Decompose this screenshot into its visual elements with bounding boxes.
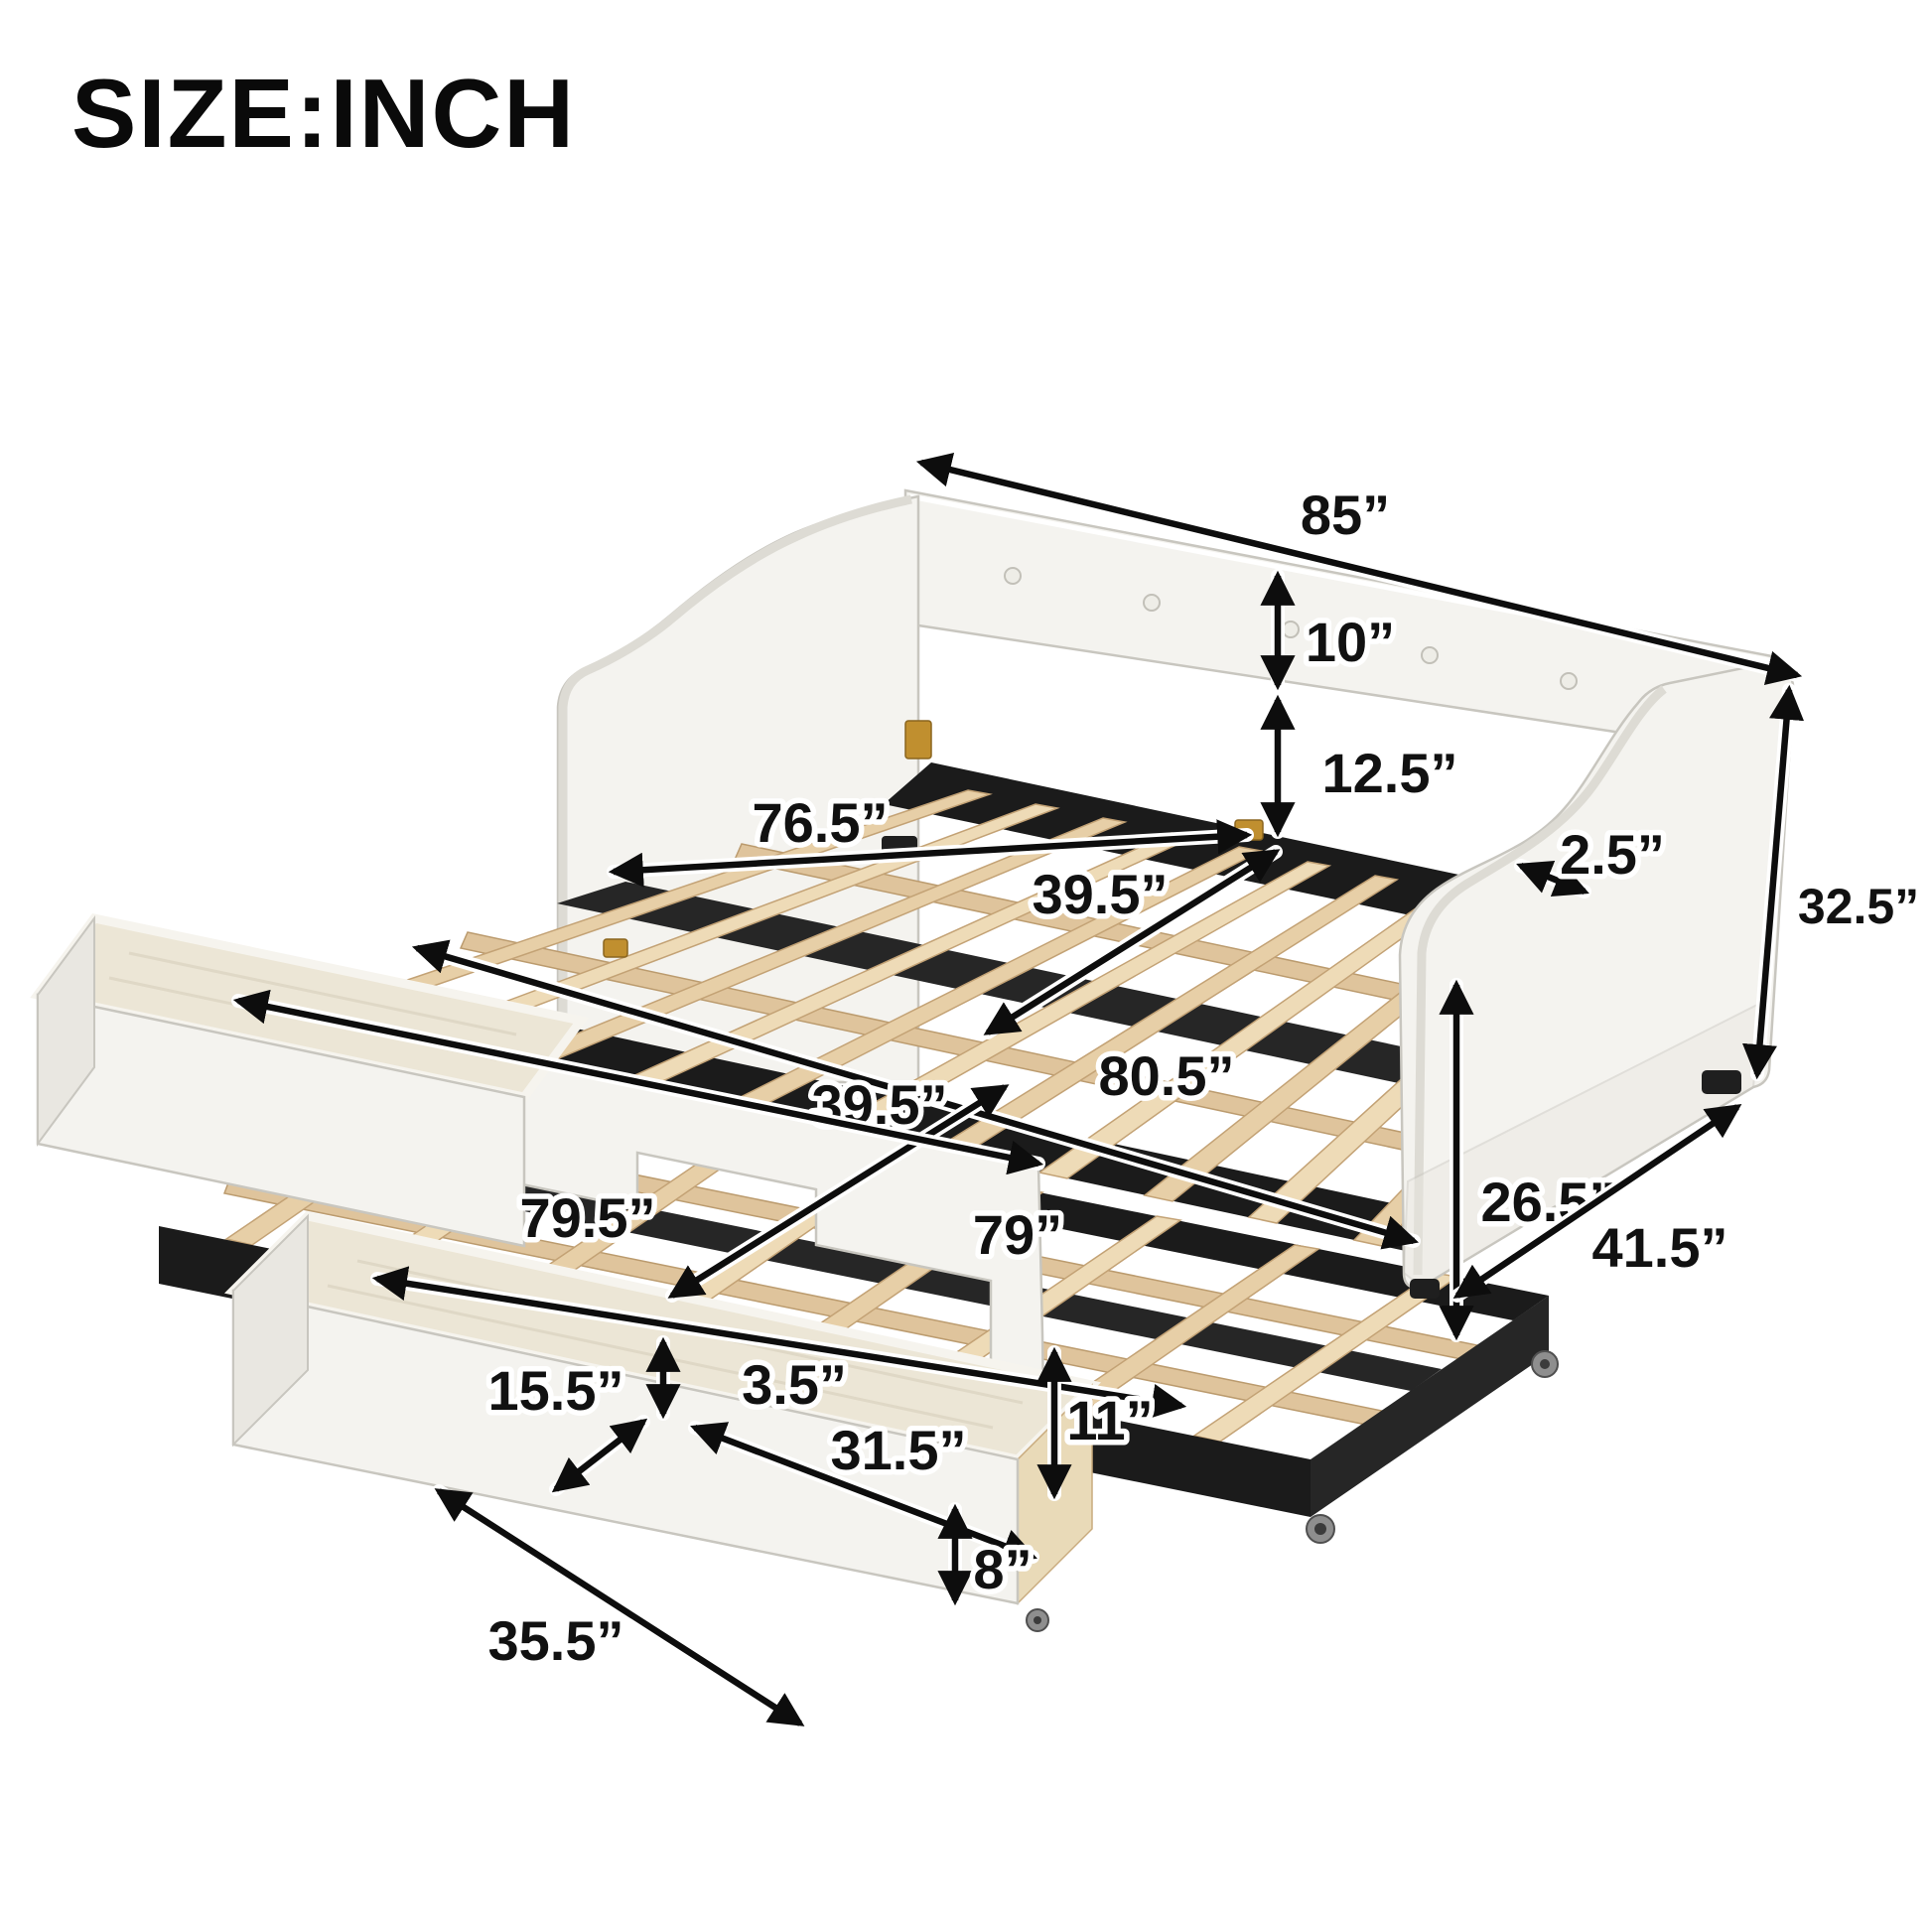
caster-hub xyxy=(1314,1523,1326,1535)
hinge-bracket xyxy=(604,939,627,957)
dim-label-back-gap-height: 12.5” xyxy=(1322,742,1458,804)
dim-label-drawer-depth: 15.5” xyxy=(488,1359,624,1422)
dim-label-overall-length: 85” xyxy=(1301,483,1390,546)
dim-label-overall-height: 32.5” xyxy=(1798,879,1919,934)
dim-label-drawer-gap: 3.5” xyxy=(742,1353,847,1416)
page-title: SIZE:INCH xyxy=(71,59,576,168)
daybed-dimension-diagram: SIZE:INCH xyxy=(0,0,1932,1932)
tufting-button xyxy=(1283,621,1299,637)
dim-label-drawer-height: 8” xyxy=(973,1538,1032,1600)
right-arm-foot xyxy=(1410,1279,1440,1299)
tufting-button xyxy=(1005,568,1021,584)
dim-label-overall-depth: 41.5” xyxy=(1592,1216,1728,1279)
caster-hub xyxy=(1540,1359,1550,1369)
dim-label-arm-top-thickness: 2.5” xyxy=(1560,823,1665,886)
tufting-button xyxy=(1144,595,1160,611)
drawer-caster xyxy=(1027,1609,1048,1631)
dim-label-trundle-frame-height: 11” xyxy=(1066,1389,1153,1451)
dim-label-extended-length: 80.5” xyxy=(1099,1044,1235,1107)
dim-label-main-bed-width: 39.5” xyxy=(1033,863,1169,925)
tufting-button xyxy=(1422,647,1438,663)
dim-label-inner-length: 76.5” xyxy=(753,791,889,854)
dim-label-drawer-inner-length: 31.5” xyxy=(831,1419,967,1481)
trundle-caster xyxy=(1307,1515,1334,1543)
trundle-caster xyxy=(1532,1351,1558,1377)
dim-label-backrest-height: 10” xyxy=(1306,611,1395,673)
tufting-button xyxy=(1561,673,1577,689)
dim-label-side-rail-length: 79.5” xyxy=(520,1186,656,1249)
dim-back-gap-height: 12.5” xyxy=(1278,700,1458,832)
hinge-bracket xyxy=(905,721,931,759)
dim-label-drawer-outer-length: 35.5” xyxy=(488,1609,624,1672)
caster-hub xyxy=(1034,1616,1041,1624)
dim-label-trundle-length: 79” xyxy=(973,1203,1062,1266)
right-arm-foot xyxy=(1702,1070,1741,1094)
size-chart-page: SIZE:INCH xyxy=(0,0,1932,1932)
